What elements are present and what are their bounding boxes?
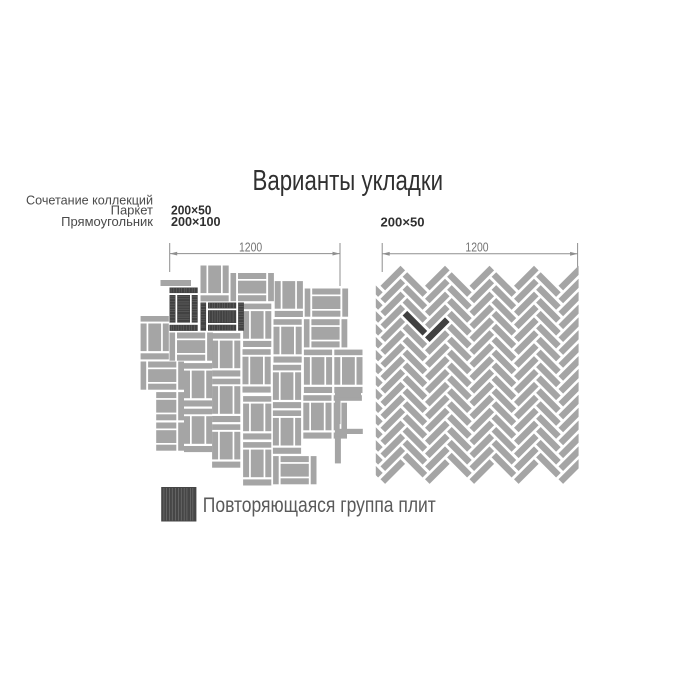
svg-text:1200: 1200	[465, 239, 488, 254]
svg-text:200×100: 200×100	[171, 215, 221, 229]
svg-text:Повторяющаяся группа плит: Повторяющаяся группа плит	[203, 493, 436, 517]
svg-text:200×50: 200×50	[381, 216, 425, 230]
svg-text:Варианты укладки: Варианты укладки	[253, 165, 444, 197]
svg-text:Прямоугольник: Прямоугольник	[61, 214, 153, 229]
svg-text:1200: 1200	[239, 239, 262, 254]
